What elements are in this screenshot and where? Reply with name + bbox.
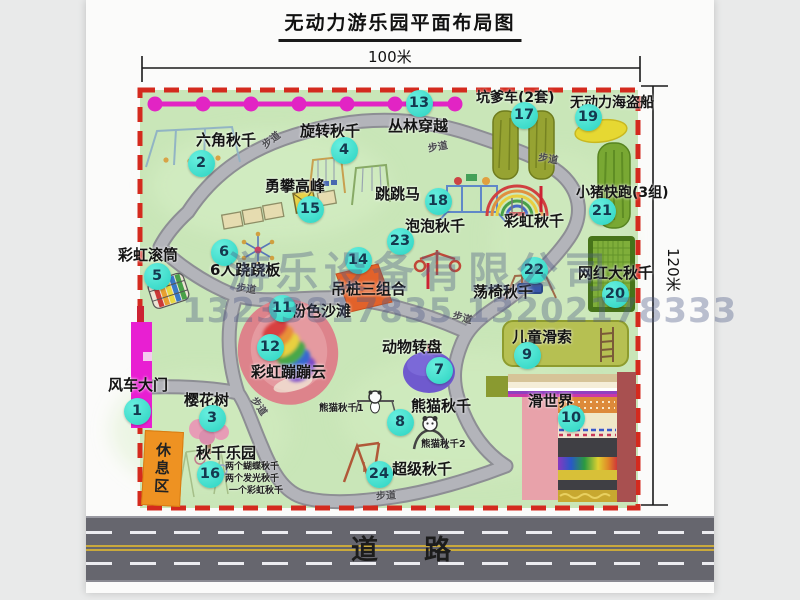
badge-jungle-crossing: 13 — [406, 90, 433, 117]
park-layout-photo: 无动力游乐园平面布局图 100米 120米 — [0, 0, 800, 600]
badge-animal-turntable: 7 — [426, 357, 453, 384]
sub-label-0: 熊猫秋千1 — [319, 404, 364, 414]
sub-label-2: 两个蝴蝶秋千 — [225, 463, 279, 472]
label-rainbow-bounce-cloud: 彩虹蹦蹦云 — [251, 365, 326, 380]
badge-rotating-swing: 4 — [331, 137, 358, 164]
label-pit-car: 坑爹车(2套) — [476, 91, 555, 105]
label-rotating-swing: 旋转秋千 — [300, 124, 360, 139]
sub-label-3: 两个发光秋千 — [225, 475, 279, 484]
badge-rainbow-bounce-cloud: 12 — [257, 334, 284, 361]
road: 道路 — [86, 516, 714, 582]
badge-swing-park: 16 — [197, 461, 224, 488]
label-bubble-swing: 泡泡秋千 — [405, 219, 465, 234]
watermark-phone: 13233817835 13202178333 — [182, 294, 737, 328]
badge-hexagon-swing: 2 — [188, 150, 215, 177]
page-title: 无动力游乐园平面布局图 — [278, 8, 521, 42]
badge-super-swing: 24 — [366, 461, 393, 488]
label-climb-peak: 勇攀高峰 — [265, 179, 325, 194]
label-panda-swing: 熊猫秋千 — [411, 399, 471, 414]
path-label-5: 步道 — [376, 491, 396, 502]
width-dimension-label: 100米 — [368, 46, 412, 67]
label-piggy-run: 小猪快跑(3组) — [576, 186, 669, 200]
sub-label-1: 熊猫秋千2 — [421, 440, 466, 450]
badge-jumping-horse: 18 — [425, 188, 452, 215]
badge-rainbow-roller: 5 — [144, 263, 171, 290]
badge-pit-car: 17 — [511, 102, 538, 129]
rest-area-label: 休息区 — [151, 441, 175, 496]
road-label: 道路 — [351, 528, 497, 567]
badge-pirate-ship: 19 — [575, 104, 602, 131]
badge-piggy-run: 21 — [589, 198, 616, 225]
badge-slide-world: 10 — [558, 405, 585, 432]
label-jungle-crossing: 丛林穿越 — [388, 119, 448, 134]
sub-label-4: 一个彩虹秋千 — [229, 487, 283, 496]
watermark-company: 游乐设备有限公司 — [228, 252, 612, 294]
badge-panda-swing: 8 — [387, 409, 414, 436]
badge-kids-zipline: 9 — [514, 342, 541, 369]
badge-climb-peak: 15 — [297, 196, 324, 223]
label-animal-turntable: 动物转盘 — [382, 340, 442, 355]
badge-cherry-tree: 3 — [199, 405, 226, 432]
label-rainbow-roller: 彩虹滚筒 — [118, 248, 178, 263]
badge-windmill-gate: 1 — [124, 398, 151, 425]
label-super-swing: 超级秋千 — [392, 462, 452, 477]
rest-area-zone: 休息区 — [141, 430, 184, 507]
label-rainbow-swing: 彩虹秋千 — [504, 214, 564, 229]
label-swing-park: 秋千乐园 — [196, 446, 256, 461]
height-dimension-label: 120米 — [663, 248, 684, 292]
label-jumping-horse: 跳跳马 — [375, 187, 420, 202]
label-windmill-gate: 风车大门 — [108, 378, 168, 393]
label-hexagon-swing: 六角秋千 — [196, 133, 256, 148]
